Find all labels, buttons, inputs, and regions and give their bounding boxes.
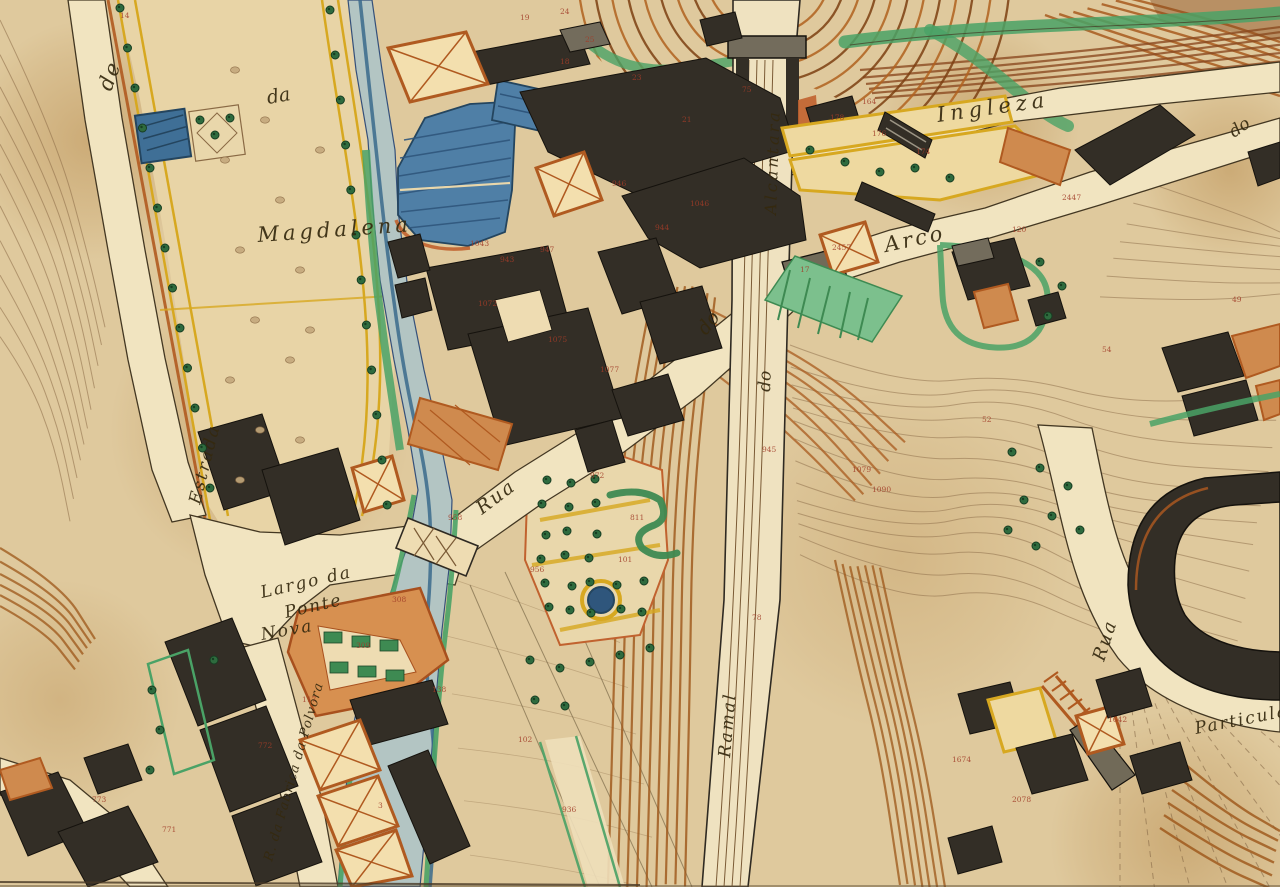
parcel-number: 14 [120, 11, 130, 20]
parcel-number: 21 [682, 115, 692, 124]
parcel-number: 1075 [548, 335, 567, 344]
parcel-number: 23 [632, 73, 642, 82]
parcel-number: 771 [162, 825, 176, 834]
parcel-number: 308 [392, 595, 407, 604]
label-alcantara: Alcantara [761, 109, 784, 217]
parcel-number: 1079 [852, 465, 871, 474]
parcel-number: 1674 [952, 755, 971, 764]
parcel-number: 54 [1102, 345, 1112, 354]
parcel-number: 1072 [478, 299, 497, 308]
parcel-number: 49 [1232, 295, 1242, 304]
parcel-number: 1046 [690, 199, 709, 208]
parcel-number: 1642 [1108, 715, 1127, 724]
parcel-number: 946 [612, 179, 627, 188]
parcel-number: 18 [560, 57, 570, 66]
parcel-number: 947 [540, 245, 555, 254]
parcel-number: 52 [982, 415, 992, 424]
parcel-number: 174 [916, 147, 931, 156]
parcel-number: 772 [258, 741, 273, 750]
parcel-number: 120 [1012, 225, 1027, 234]
parcel-number: 3 [378, 801, 383, 810]
parcel-number: 164 [862, 97, 877, 106]
parcel-number: 309 [356, 641, 371, 650]
map-canvas: de da Magdalena Ingleza do Alcantara Arc… [0, 0, 1280, 887]
parcel-number: 17 [800, 265, 810, 274]
parcel-number: 78 [752, 613, 762, 622]
parcel-number: 178 [830, 113, 845, 122]
parcel-number: 102 [518, 735, 533, 744]
parcel-number: 958 [448, 513, 463, 522]
parcel-number: 2078 [1012, 795, 1031, 804]
parcel-number: 1090 [872, 485, 891, 494]
parcel-number: 1043 [470, 239, 489, 248]
parcel-number: 972 [590, 471, 605, 480]
parcel-number: 1077 [600, 365, 619, 374]
parcel-number: 945 [762, 445, 777, 454]
label-da: da [265, 83, 292, 109]
parcel-number: 25 [585, 35, 595, 44]
parcel-number: 811 [630, 513, 644, 522]
parcel-number: 2447 [1062, 193, 1081, 202]
parcel-number: 943 [500, 255, 515, 264]
parcel-number: 956 [530, 565, 545, 574]
map-stage: de da Magdalena Ingleza do Alcantara Arc… [0, 0, 1280, 887]
parcel-number: 176 [872, 129, 887, 138]
label-do-rail: do [755, 370, 776, 392]
parcel-number: 138 [432, 685, 447, 694]
parcel-number: 24 [560, 7, 570, 16]
parcel-number: 936 [562, 805, 577, 814]
parcel-number: 117 [302, 695, 317, 704]
parcel-number: 75 [742, 85, 752, 94]
parcel-number: 2457 [832, 243, 851, 252]
parcel-number: 773 [92, 795, 107, 804]
parcel-number: 101 [618, 555, 632, 564]
parcel-number: 944 [655, 223, 670, 232]
parcel-number: 19 [520, 13, 530, 22]
